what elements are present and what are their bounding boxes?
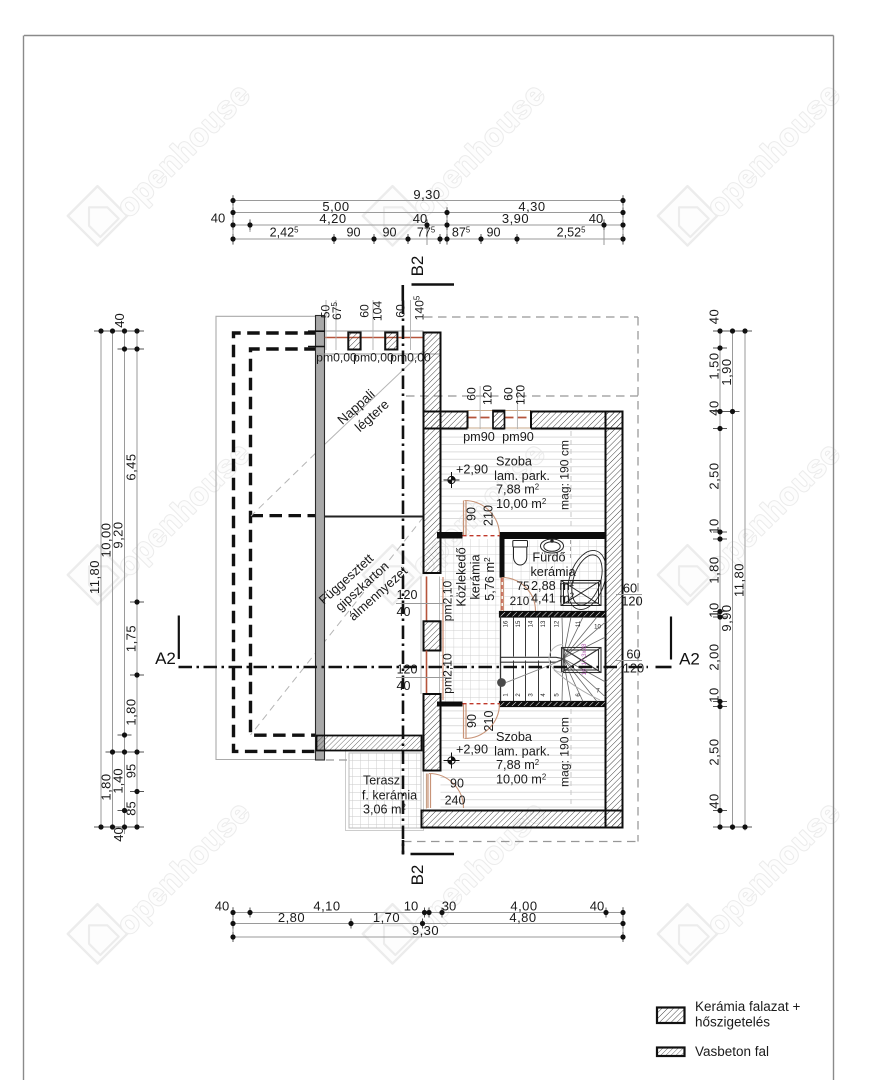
svg-text:mag: 190 cm: mag: 190 cm (558, 440, 572, 510)
svg-text:1,90: 1,90 (719, 358, 734, 385)
svg-text:40: 40 (397, 605, 411, 619)
svg-text:12: 12 (555, 620, 561, 627)
svg-text:60: 60 (394, 304, 408, 318)
svg-text:40: 40 (112, 313, 127, 327)
svg-text:+2,90: +2,90 (456, 463, 488, 477)
svg-text:+2,90: +2,90 (456, 743, 488, 757)
svg-text:10,00 m2: 10,00 m2 (496, 772, 546, 787)
svg-text:Szoba: Szoba (496, 730, 533, 744)
svg-text:40: 40 (589, 211, 603, 226)
svg-text:2,50: 2,50 (707, 462, 722, 489)
svg-text:40: 40 (397, 679, 411, 693)
svg-text:75: 75 (516, 579, 530, 593)
svg-text:A2: A2 (679, 650, 700, 669)
svg-text:lam. park.: lam. park. (494, 469, 550, 483)
svg-text:120: 120 (397, 663, 418, 677)
svg-text:10,00 m2: 10,00 m2 (496, 497, 546, 512)
svg-text:3,90: 3,90 (502, 211, 529, 226)
svg-text:Vasbeton fal: Vasbeton fal (695, 1044, 769, 1059)
svg-text:7,88 m2: 7,88 m2 (496, 482, 539, 497)
svg-text:95: 95 (124, 764, 139, 778)
svg-text:2,00: 2,00 (707, 643, 722, 670)
svg-text:2,80: 2,80 (278, 910, 305, 925)
svg-text:60: 60 (358, 304, 372, 318)
svg-text:Szoba: Szoba (496, 455, 533, 469)
svg-text:11: 11 (576, 620, 582, 627)
svg-text:1,70: 1,70 (373, 910, 400, 925)
svg-text:90: 90 (465, 507, 479, 521)
svg-text:40: 40 (215, 899, 229, 914)
svg-text:120: 120 (481, 385, 495, 405)
svg-text:90: 90 (382, 226, 396, 240)
svg-text:4,20: 4,20 (319, 211, 346, 226)
svg-text:60: 60 (626, 647, 640, 662)
svg-text:pm0,00: pm0,00 (316, 351, 357, 365)
svg-text:lam. park.: lam. park. (494, 745, 550, 759)
svg-text:9,30: 9,30 (413, 187, 440, 202)
svg-text:Terasz: Terasz (363, 774, 400, 788)
svg-text:1,80: 1,80 (124, 698, 139, 725)
svg-text:f. kerámia: f. kerámia (362, 789, 417, 803)
svg-text:kerámia: kerámia (469, 553, 483, 599)
svg-text:pm2,10: pm2,10 (441, 580, 455, 621)
svg-text:40: 40 (707, 793, 722, 808)
svg-text:60: 60 (465, 387, 479, 401)
svg-text:11,80: 11,80 (87, 560, 102, 594)
svg-text:90: 90 (346, 226, 360, 240)
svg-text:13: 13 (541, 620, 547, 627)
svg-text:A2: A2 (155, 649, 176, 668)
svg-text:2,50: 2,50 (707, 738, 722, 765)
svg-text:14: 14 (529, 620, 535, 627)
svg-text:210: 210 (510, 594, 530, 608)
svg-text:5,76 m2: 5,76 m2 (482, 557, 497, 601)
svg-text:pm90: pm90 (502, 430, 534, 444)
svg-text:Közlekedő: Közlekedő (455, 547, 469, 606)
svg-text:120: 120 (623, 661, 644, 676)
svg-text:10: 10 (404, 899, 418, 914)
svg-text:90: 90 (465, 714, 479, 728)
svg-text:40: 40 (211, 211, 225, 226)
svg-text:210: 210 (482, 505, 496, 526)
svg-text:240: 240 (445, 794, 466, 808)
svg-text:40: 40 (590, 899, 604, 914)
svg-text:3,06 m2: 3,06 m2 (363, 802, 406, 817)
svg-text:4,10: 4,10 (313, 899, 340, 914)
svg-text:1,80: 1,80 (707, 556, 722, 583)
svg-text:1,75: 1,75 (124, 625, 139, 652)
svg-text:6,45: 6,45 (124, 453, 139, 480)
svg-text:hőszigetelés: hőszigetelés (695, 1015, 770, 1030)
svg-text:120: 120 (397, 588, 418, 602)
svg-text:7,88 m2: 7,88 m2 (496, 758, 539, 773)
svg-text:mag: 190 cm: mag: 190 cm (558, 717, 572, 787)
svg-text:16x17,3x28: 16x17,3x28 (581, 643, 588, 676)
svg-text:4,80: 4,80 (509, 910, 536, 925)
svg-text:9,30: 9,30 (412, 923, 439, 938)
svg-text:pm0,00: pm0,00 (353, 351, 394, 365)
svg-text:10: 10 (594, 625, 601, 631)
svg-text:pm90: pm90 (463, 430, 495, 444)
svg-text:210: 210 (482, 711, 496, 732)
svg-text:Kerámia falazat +: Kerámia falazat + (695, 999, 801, 1014)
svg-text:16: 16 (504, 620, 510, 627)
svg-text:B2: B2 (408, 865, 427, 886)
svg-text:90: 90 (486, 226, 500, 240)
svg-text:120: 120 (514, 385, 528, 405)
svg-text:pm2,10: pm2,10 (441, 653, 455, 694)
svg-text:11,80: 11,80 (732, 563, 747, 597)
svg-text:15: 15 (516, 620, 522, 627)
svg-text:40: 40 (707, 309, 722, 324)
svg-text:120: 120 (621, 594, 642, 609)
svg-text:9,20: 9,20 (111, 521, 126, 548)
svg-text:B2: B2 (408, 256, 427, 277)
svg-text:104: 104 (371, 301, 385, 322)
svg-text:90: 90 (450, 777, 464, 791)
